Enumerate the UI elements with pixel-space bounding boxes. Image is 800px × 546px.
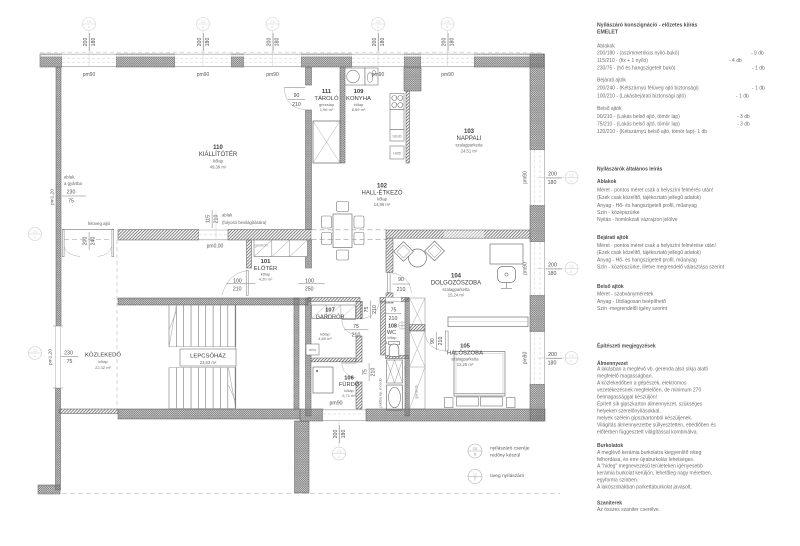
svg-text:CS: CS [33,349,37,353]
svg-text:puttba ép. mosdó: puttba ép. mosdó [379,378,383,407]
svg-text:111: 111 [322,89,332,95]
svg-text:200: 200 [266,38,272,47]
svg-text:Anyag - Hő- és hangszigetelt p: Anyag - Hő- és hangszigetelt profil, műa… [597,203,697,209]
svg-text:103: 103 [464,129,475,135]
svg-text:CS: CS [569,354,573,358]
svg-text:Világítás álmennyezetbe süllye: Világítás álmennyezetbe süllyesztetten, … [597,423,716,429]
svg-text:vezetékezésnek megfelelően, de: vezetékezésnek megfelelően, de minimum 2… [597,388,701,394]
svg-text:75: 75 [68,199,74,205]
svg-text:180: 180 [91,38,97,47]
svg-text:ablak: ablak [222,213,233,218]
svg-text:kerámia burkolat kerüljön, leh: kerámia burkolat kerüljön, lehetőleg nag… [597,471,712,477]
svg-text:szalagparketta: szalagparketta [442,287,470,292]
svg-text:gardrób: gardrób [255,244,268,248]
svg-text:180: 180 [274,38,280,47]
svg-text:HALL-ÉTKEZŐ: HALL-ÉTKEZŐ [361,190,402,197]
svg-text:90: 90 [294,93,300,99]
svg-text:4,20 m²: 4,20 m² [259,277,273,282]
svg-text:- 3 db: - 3 db [737,122,750,128]
svg-text:200: 200 [82,237,88,246]
svg-text:A közlekedőben a gépészek, ele: A közlekedőben a gépészek, elektromos [597,381,687,387]
svg-text:200: 200 [333,430,339,439]
svg-text:120/210 - (Kétszárnyú belső: 120/210 - (Kétszárnyú belső ajtó, tömör … [597,129,707,135]
svg-text:KÖZLEKEDŐ: KÖZLEKEDŐ [85,352,121,359]
svg-text:100/210 - (Lakásbejárati biz: 100/210 - (Lakásbejárati biztonsági ajtó… [597,93,686,99]
svg-text:Nyílászáró konszignáció - előz: Nyílászáró konszignáció - előzetes kiírá… [597,22,697,28]
svg-text:200: 200 [548,352,557,358]
svg-text:O: O [474,475,477,479]
svg-text:200: 200 [197,38,203,47]
svg-text:helyeken szerelőnyílásokkal,: helyeken szerelőnyílásokkal, [597,409,661,415]
svg-text:- 1 db: - 1 db [736,93,749,99]
svg-text:90: 90 [430,338,436,344]
svg-text:pm90: pm90 [266,72,279,78]
svg-text:HÁLÓSZOBA: HÁLÓSZOBA [447,350,483,357]
svg-text:180: 180 [205,38,211,47]
svg-text:CS: CS [87,20,91,24]
svg-text:pm1,20: pm1,20 [47,349,53,365]
svg-text:Ablakok: Ablakok [597,179,617,185]
svg-text:- 4 db: - 4 db [729,58,742,64]
svg-text:CS: CS [33,230,37,234]
svg-text:szalagparketta: szalagparketta [455,143,483,148]
svg-text:75: 75 [353,324,359,330]
svg-text:szalagparketta: szalagparketta [451,357,479,362]
svg-text:A lakásban a meglévő vb. geren: A lakásban a meglévő vb. gerenda alsó sí… [597,367,708,373]
svg-text:Szaniterek: Szaniterek [597,500,622,506]
svg-text:230/75 - (hő és hangszigetel: 230/75 - (hő és hangszigetelt bukó) [597,65,676,71]
svg-text:Méret - szabványméretek: Méret - szabványméretek [597,292,654,298]
svg-text:210: 210 [372,305,378,314]
svg-text:15,24 m²: 15,24 m² [448,293,465,298]
svg-text:- 9 db: - 9 db [751,50,764,56]
svg-text:75: 75 [362,369,368,375]
svg-text:FÜRDŐ: FÜRDŐ [339,381,360,388]
svg-text:200: 200 [83,38,89,47]
svg-text:CS: CS [201,20,205,24]
svg-text:WC: WC [387,330,396,336]
svg-text:105: 105 [460,344,471,350]
svg-text:megfelelő magasságban.: megfelelő magasságban. [597,374,653,380]
svg-text:230: 230 [64,350,73,356]
svg-text:210: 210 [213,215,219,224]
svg-text:23,63 m²: 23,63 m² [200,360,217,365]
svg-text:115: 115 [205,215,211,223]
svg-text:90/210 - (Lakás belső ajtó,: 90/210 - (Lakás belső ajtó, tömör lap) [597,114,680,120]
svg-text:200/240 - (Kétszárnyú félüve: 200/240 - (Kétszárnyú félüveg ajtó bizto… [597,86,699,92]
svg-text:cirkó: cirkó [309,348,317,352]
svg-text:felhordása, és erre újraburkol: felhordása, és erre újraburkolás lehetsé… [597,457,694,463]
svg-text:180: 180 [341,430,347,439]
svg-text:100: 100 [233,278,242,284]
svg-text:210: 210 [233,287,242,293]
svg-text:180: 180 [548,271,557,277]
svg-text:EMELET: EMELET [597,29,619,35]
svg-text:kőlap: kőlap [387,336,396,340]
svg-text:75/210 - (Lakás belső ajtó,: 75/210 - (Lakás belső ajtó, tömör lap) [597,122,680,128]
svg-text:49,39 m²: 49,39 m² [210,165,227,170]
svg-text:SG30: SG30 [392,135,401,139]
svg-text:Szín - középszürke: Szín - középszürke [597,210,640,216]
svg-text:Épített sík gipszkarton álmenn: Épített sík gipszkarton álmennyezet, szü… [597,401,703,408]
svg-text:pm90: pm90 [441,72,454,78]
svg-text:pm90: pm90 [197,72,210,78]
svg-text:Nyílászárók általános leírás: Nyílászárók általános leírás [597,167,663,173]
svg-text:Bejárati ajtók: Bejárati ajtók [597,235,629,241]
svg-text:kőlap: kőlap [261,271,271,276]
svg-text:a gyártba: a gyártba [64,181,83,186]
svg-text:(Ezek csak közelítő, tájékozta: (Ezek csak közelítő, tájékoztató jellegű… [597,195,701,201]
svg-text:240: 240 [90,237,96,246]
svg-text:CS: CS [569,264,573,268]
svg-text:Ablakok: Ablakok [597,43,615,49]
svg-text:- 1 db: - 1 db [752,86,765,92]
svg-text:(Ezek csak közelítő, tájékozta: (Ezek csak közelítő, tájékoztató jellegű… [597,250,701,256]
svg-text:Szín -megrendelői igény szerin: Szín -megrendelői igény szerint [597,306,668,312]
svg-text:210: 210 [292,102,301,108]
svg-text:CS: CS [473,447,477,451]
svg-text:pm0,00: pm0,00 [207,244,224,250]
svg-text:kőlap: kőlap [98,359,108,364]
svg-text:A meglévő kerámia burkolatra k: A meglévő kerámia burkolatra kiegyenlítő… [597,450,701,456]
svg-text:ablak,: ablak, [64,175,75,180]
svg-text:100: 100 [305,278,314,284]
svg-text:pm90: pm90 [372,72,385,78]
svg-text:75: 75 [391,308,397,314]
svg-text:Szín - középszürke, illetve me: Szín - középszürke, illetve megrendelő v… [597,265,725,271]
svg-text:210: 210 [438,337,444,346]
svg-text:12,25 m²: 12,25 m² [457,362,474,367]
svg-text:melyek szélein gipszkartonból: melyek szélein gipszkartonból készüljene… [597,416,692,422]
svg-text:108: 108 [388,323,397,329]
svg-text:180: 180 [548,180,557,186]
svg-text:Belső ajtók: Belső ajtók [597,106,622,112]
svg-text:CS: CS [569,173,573,177]
svg-text:210: 210 [389,316,398,322]
svg-text:egyforma színben.: egyforma színben. [597,478,638,484]
svg-text:redőny készül: redőny készül [490,453,520,459]
svg-text:GARDRÓB: GARDRÓB [316,313,345,320]
svg-text:Méret - pontos méret csak a he: Méret - pontos méret csak a helyszíni fe… [597,187,713,193]
svg-text:8,69 m²: 8,69 m² [352,107,366,112]
svg-text:kőlap: kőlap [213,159,224,164]
svg-text:110: 110 [213,145,223,151]
svg-text:CS: CS [270,20,274,24]
svg-text:(folyosó bevilágítására): (folyosó bevilágítására) [222,220,267,225]
svg-text:KIÁLLÍTÓTÉR: KIÁLLÍTÓTÉR [199,151,238,158]
svg-text:A "hideg" megnevezésű területe: A "hideg" megnevezésű területeken igénye… [597,464,703,470]
svg-text:180: 180 [548,361,557,367]
svg-text:LEPCSŐHÁZ: LEPCSŐHÁZ [190,353,226,360]
svg-text:felüveg ajtó: felüveg ajtó [88,221,111,226]
svg-text:101: 101 [261,259,272,265]
svg-text:pm90: pm90 [522,171,528,184]
svg-text:200: 200 [548,263,557,269]
svg-text:mosdó: mosdó [404,366,408,377]
svg-text:CS: CS [337,449,341,453]
svg-text:üveg nyílászáró: üveg nyílászáró [490,473,525,479]
svg-text:4,80 m²: 4,80 m² [318,336,332,341]
svg-text:Az összes szaniter cserélve.: Az összes szaniter cserélve. [597,507,660,513]
svg-text:kőlap: kőlap [377,197,388,202]
svg-text:Nyitás - homlokzati vázrajzon: Nyitás - homlokzati vázrajzon jelölve [597,217,678,223]
svg-text:210: 210 [370,368,376,377]
svg-text:230: 230 [67,190,76,196]
svg-text:200: 200 [441,38,447,47]
svg-text:Hűtő: Hűtő [393,152,401,156]
svg-text:5,71 m²: 5,71 m² [342,393,356,398]
svg-text:Anyag - Utólagosan beépíthető: Anyag - Utólagosan beépíthető [597,299,666,305]
svg-text:210: 210 [352,332,361,338]
svg-text:102: 102 [377,184,388,190]
svg-text:104: 104 [451,274,462,280]
svg-text:200: 200 [548,172,557,178]
svg-text:250: 250 [305,287,314,293]
svg-text:pm90: pm90 [83,72,96,78]
svg-text:gardrób: gardrób [414,384,419,399]
svg-text:180: 180 [380,38,386,47]
svg-text:Anyag - Hő- és hangszigetelt p: Anyag - Hő- és hangszigetelt profil, műa… [597,258,697,264]
svg-text:- 1 db: - 1 db [752,65,765,71]
svg-text:Bejárati ajtók: Bejárati ajtók [597,77,626,83]
svg-text:75: 75 [67,359,73,365]
svg-text:pm1,20: pm1,20 [49,189,55,205]
svg-text:belmagassággal készüljön!: belmagassággal készüljön! [597,395,657,401]
svg-text:22,32 m²: 22,32 m² [95,365,111,370]
svg-text:CS: CS [445,20,449,24]
svg-text:CS: CS [376,20,380,24]
svg-text:75: 75 [364,307,370,313]
svg-text:NAPPALI: NAPPALI [457,136,482,142]
svg-text:200: 200 [372,38,378,47]
svg-text:DOLGOZÓSZOBA: DOLGOZÓSZOBA [431,280,481,287]
svg-text:Belső ajtók: Belső ajtók [597,284,624,290]
svg-text:14,86 m²: 14,86 m² [374,202,391,207]
svg-text:115/210 - (fix + 1 nyíló): 115/210 - (fix + 1 nyíló) [597,58,648,64]
svg-text:24,51 m²: 24,51 m² [461,149,478,154]
svg-text:109: 109 [354,89,365,95]
svg-text:pm90: pm90 [330,401,343,407]
svg-text:Méret - pontos méret csak a he: Méret - pontos méret csak a helyszíni fe… [597,243,716,249]
svg-text:Építészeti megjegyzések: Építészeti megjegyzések [597,341,656,349]
svg-text:- 3 db: - 3 db [737,114,750,120]
svg-text:1,96 m²: 1,96 m² [320,107,334,112]
svg-text:előtérben függesztett világítá: előtérben függesztett világítással kombi… [597,430,698,436]
svg-text:107: 107 [325,308,335,314]
svg-text:90: 90 [398,277,404,283]
svg-text:200/180 - (aszimmetrikus nyí: 200/180 - (aszimmetrikus nyíló-bukó) [597,50,680,56]
svg-text:nyílászáró cseréje: nyílászáró cseréje [490,446,530,452]
svg-text:Burkolatok: Burkolatok [597,443,623,449]
svg-text:pm90: pm90 [522,352,528,365]
svg-text:180: 180 [449,38,455,47]
svg-text:210: 210 [397,287,406,293]
svg-text:106: 106 [344,376,354,382]
svg-text:A lakószobákban parkettaburkol: A lakószobákban parkettaburkolat javasol… [597,484,692,490]
